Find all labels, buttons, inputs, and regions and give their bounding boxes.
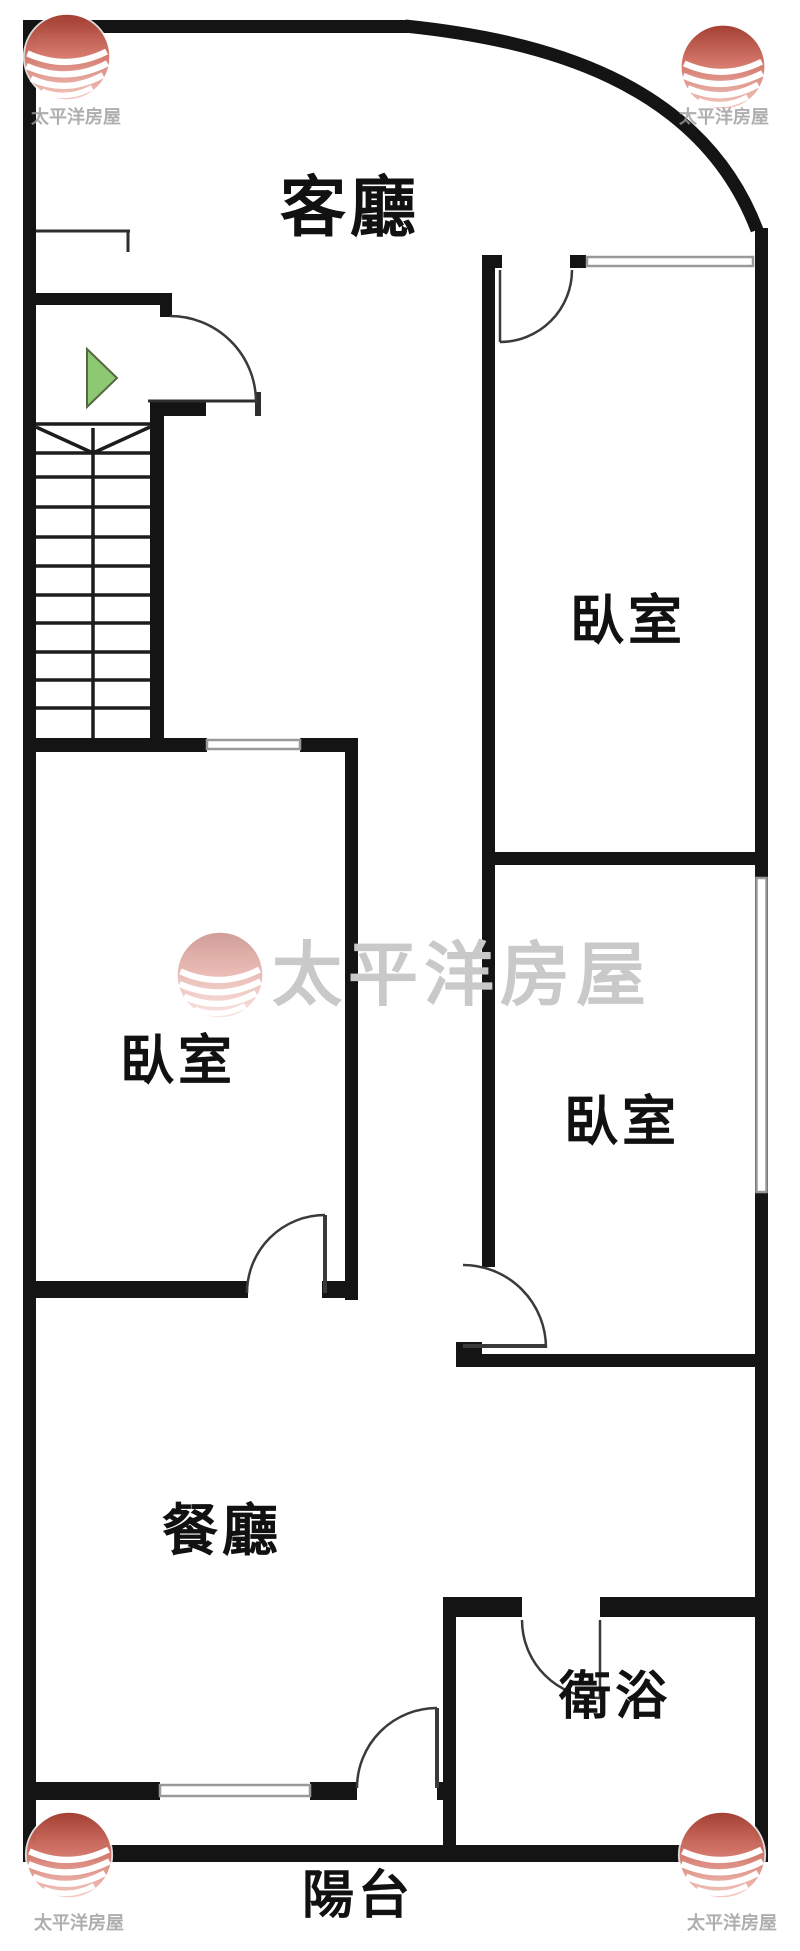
- wall-bedroom2-bottom: [482, 1354, 768, 1367]
- stairs: [36, 424, 150, 738]
- wall-bottom-outer: [23, 1845, 768, 1862]
- wall-dining-bottom-mid: [310, 1782, 357, 1800]
- wall-left-bedroom-bottom: [36, 1281, 248, 1298]
- window-bedroom1-top: [587, 257, 753, 266]
- door-arc-left-bedroom: [247, 1215, 325, 1293]
- wall-left-bedroom-right: [345, 740, 358, 1300]
- wall-entry-jamb: [160, 293, 172, 317]
- window-dining-balcony: [160, 1785, 310, 1796]
- watermark-brand-top-left: 太平洋房屋: [31, 103, 121, 129]
- pacific-house-logo-icon: [25, 1811, 113, 1899]
- room-label-dining: 餐廳: [162, 1504, 282, 1560]
- watermark-brand-center: 太平洋房屋: [272, 940, 652, 1010]
- pacific-house-logo-icon: [680, 24, 766, 110]
- watermark-brand-bottom-left: 太平洋房屋: [34, 1909, 124, 1935]
- floor-plan: 客廳 臥室 臥室 臥室 餐廳 衛浴 陽台 太平洋房屋 太平洋房屋 太平洋房屋 太…: [0, 0, 800, 1951]
- wall-bedroom1-top-jamb: [570, 255, 586, 268]
- wall-left: [23, 20, 36, 1862]
- wall-dining-bottom-right: [437, 1782, 456, 1800]
- wall-central-divider: [482, 255, 495, 1267]
- watermark-brand-bottom-right: 太平洋房屋: [687, 1909, 777, 1935]
- door-arc-bedroom2: [463, 1265, 546, 1348]
- stair-diagonal-right: [93, 427, 150, 453]
- windows: [160, 257, 767, 1796]
- wall-stairwell-right: [150, 402, 164, 752]
- wall-bedrooms-divider: [482, 852, 768, 865]
- room-label-bath: 衛浴: [559, 1671, 671, 1723]
- wall-stairs-bottom-left: [30, 738, 207, 752]
- watermark-brand-top-right: 太平洋房屋: [679, 103, 769, 129]
- wall-stairwell-cap: [150, 402, 206, 416]
- wall-dining-bottom-left: [36, 1782, 160, 1800]
- stair-diagonal-left: [36, 427, 93, 453]
- wall-bath-top-right: [600, 1597, 768, 1617]
- entrance-direction-arrow-icon: [87, 349, 117, 407]
- wall-bath-left: [443, 1597, 456, 1845]
- door-arc-entry: [170, 316, 256, 402]
- wall-bedroom1-top-left: [482, 255, 502, 268]
- door-arc-balcony: [357, 1708, 437, 1788]
- pacific-house-logo-icon: [23, 13, 111, 101]
- thin-walls: [36, 231, 258, 401]
- room-label-bedroom-right-top: 臥室: [570, 594, 686, 648]
- window-bedroom2-right: [757, 878, 767, 1192]
- window-left-bedroom-top: [207, 740, 300, 749]
- room-label-living: 客廳: [280, 175, 420, 241]
- door-arc-bedroom1: [500, 270, 572, 342]
- room-label-bedroom-right-bottom: 臥室: [564, 1095, 680, 1149]
- room-label-bedroom-left: 臥室: [120, 1034, 236, 1088]
- wall-entry: [36, 293, 172, 305]
- pacific-house-logo-icon: [678, 1811, 766, 1899]
- pacific-house-logo-icon: [176, 931, 264, 1019]
- room-label-balcony: 陽台: [302, 1870, 414, 1922]
